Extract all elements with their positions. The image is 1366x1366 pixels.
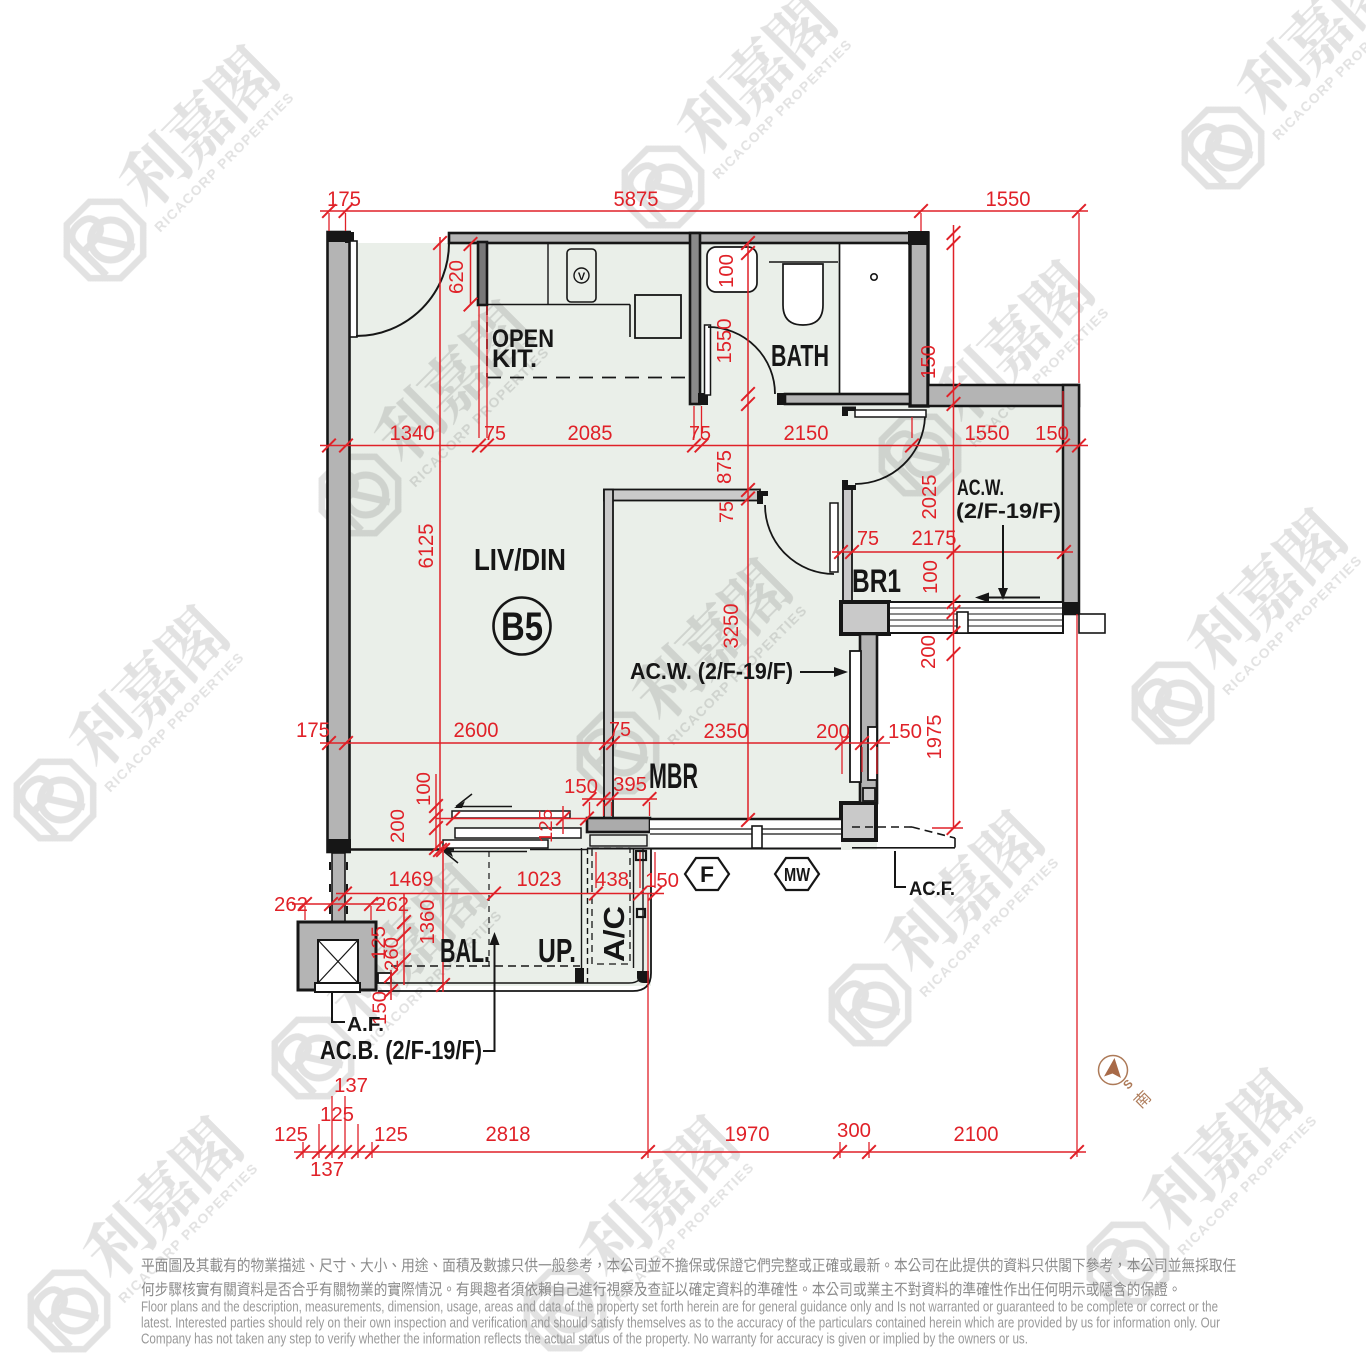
svg-text:Company has not taken any step: Company has not taken any step to verify… — [141, 1332, 1028, 1348]
svg-text:125: 125 — [320, 1104, 354, 1126]
svg-text:AC.B. (2/F-19/F): AC.B. (2/F-19/F) — [320, 1035, 482, 1065]
svg-text:2818: 2818 — [486, 1123, 531, 1146]
svg-text:1970: 1970 — [725, 1123, 770, 1146]
svg-text:2350: 2350 — [704, 720, 749, 743]
svg-text:MBR: MBR — [649, 757, 698, 796]
svg-text:175: 175 — [296, 719, 330, 742]
svg-text:438: 438 — [595, 869, 629, 891]
svg-text:200: 200 — [918, 635, 940, 669]
svg-text:137: 137 — [334, 1075, 368, 1097]
svg-text:2175: 2175 — [912, 527, 957, 550]
svg-text:150: 150 — [888, 721, 922, 743]
svg-text:150: 150 — [1035, 423, 1069, 445]
svg-text:100: 100 — [414, 772, 435, 806]
svg-text:B5: B5 — [501, 605, 543, 649]
svg-text:1975: 1975 — [924, 715, 946, 760]
svg-text:KIT.: KIT. — [492, 345, 537, 373]
svg-text:100: 100 — [920, 560, 942, 594]
svg-text:875: 875 — [714, 450, 736, 484]
svg-text:75: 75 — [689, 423, 711, 445]
svg-text:200: 200 — [388, 809, 409, 843]
svg-text:BATH: BATH — [771, 338, 829, 373]
svg-text:latest. Interested parties sho: latest. Interested parties should rely o… — [141, 1316, 1220, 1332]
svg-text:LIV/DIN: LIV/DIN — [474, 542, 566, 577]
svg-text:125: 125 — [536, 809, 556, 843]
svg-text:125: 125 — [374, 1124, 408, 1146]
svg-text:6125: 6125 — [415, 524, 438, 569]
svg-text:2085: 2085 — [568, 422, 613, 445]
svg-text:A.F.: A.F. — [347, 1014, 384, 1036]
svg-text:1469: 1469 — [389, 868, 434, 891]
svg-text:1550: 1550 — [986, 188, 1031, 211]
svg-text:150: 150 — [645, 870, 679, 892]
svg-text:BR1: BR1 — [852, 563, 901, 599]
svg-text:100: 100 — [716, 254, 738, 288]
svg-text:75: 75 — [609, 719, 631, 741]
svg-text:1550: 1550 — [714, 319, 736, 364]
svg-text:75: 75 — [717, 501, 738, 523]
svg-text:260: 260 — [382, 937, 403, 971]
svg-text:A/C: A/C — [599, 906, 631, 962]
svg-text:150: 150 — [918, 345, 940, 379]
svg-text:200: 200 — [816, 721, 850, 743]
svg-text:F: F — [700, 862, 714, 887]
svg-text:UP.: UP. — [538, 932, 576, 969]
svg-text:300: 300 — [837, 1120, 871, 1142]
svg-text:1550: 1550 — [965, 422, 1010, 445]
svg-text:175: 175 — [327, 188, 361, 211]
svg-text:2025: 2025 — [919, 475, 941, 520]
svg-text:(2/F-19/F): (2/F-19/F) — [956, 500, 1061, 523]
svg-text:1360: 1360 — [417, 900, 439, 945]
svg-text:AC.W.: AC.W. — [957, 475, 1004, 500]
svg-text:395: 395 — [613, 774, 647, 796]
svg-text:V: V — [578, 271, 586, 283]
svg-text:3250: 3250 — [720, 604, 743, 649]
svg-text:BAL.: BAL. — [440, 932, 490, 969]
svg-text:75: 75 — [857, 528, 879, 550]
svg-text:1340: 1340 — [390, 422, 435, 445]
svg-text:137: 137 — [310, 1159, 344, 1181]
svg-text:S: S — [1120, 1077, 1136, 1093]
svg-text:262: 262 — [274, 894, 308, 916]
svg-text:2600: 2600 — [454, 719, 499, 742]
svg-text:AC.F.: AC.F. — [909, 879, 955, 900]
svg-text:5875: 5875 — [614, 188, 659, 211]
svg-text:2150: 2150 — [784, 422, 829, 445]
svg-text:AC.W. (2/F-19/F): AC.W. (2/F-19/F) — [630, 658, 793, 684]
svg-text:2100: 2100 — [954, 1123, 999, 1146]
svg-text:MW: MW — [784, 865, 810, 885]
svg-text:Floor plans and the descriptio: Floor plans and the description, measure… — [141, 1300, 1218, 1316]
svg-text:1023: 1023 — [517, 868, 562, 891]
svg-text:150: 150 — [564, 776, 598, 798]
svg-text:620: 620 — [446, 260, 468, 294]
